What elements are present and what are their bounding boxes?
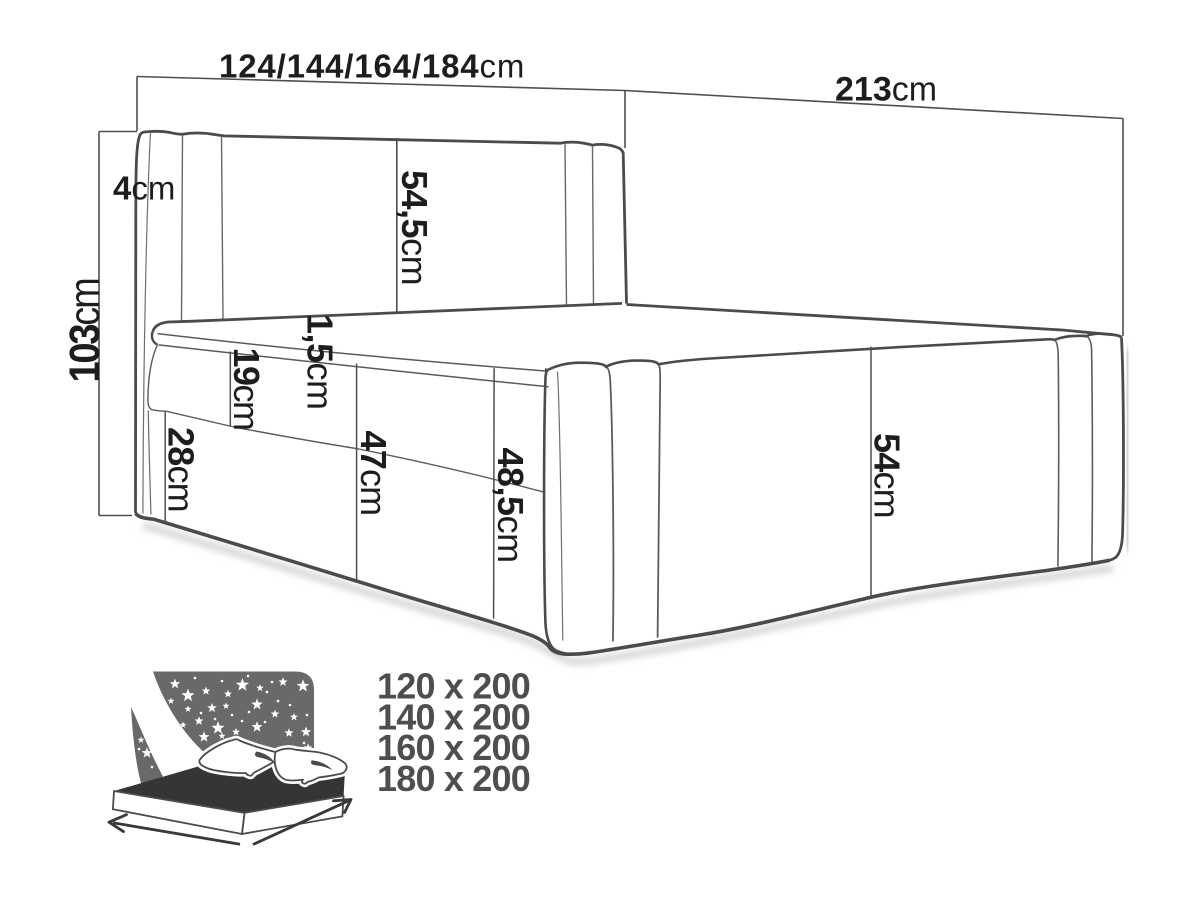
svg-text:124/144/164/184cm: 124/144/164/184cm	[219, 48, 525, 85]
svg-text:48,5cm: 48,5cm	[490, 448, 531, 563]
svg-text:28cm: 28cm	[161, 427, 202, 512]
svg-text:1,5cm: 1,5cm	[300, 314, 341, 410]
svg-text:103cm: 103cm	[60, 279, 109, 382]
svg-text:47cm: 47cm	[353, 431, 394, 516]
svg-text:54,5cm: 54,5cm	[394, 170, 435, 285]
svg-text:180 x 200: 180 x 200	[377, 758, 530, 799]
svg-text:54cm: 54cm	[867, 433, 908, 518]
svg-text:19cm: 19cm	[226, 348, 267, 430]
svg-text:213cm: 213cm	[835, 71, 937, 109]
svg-text:4cm: 4cm	[113, 170, 175, 207]
